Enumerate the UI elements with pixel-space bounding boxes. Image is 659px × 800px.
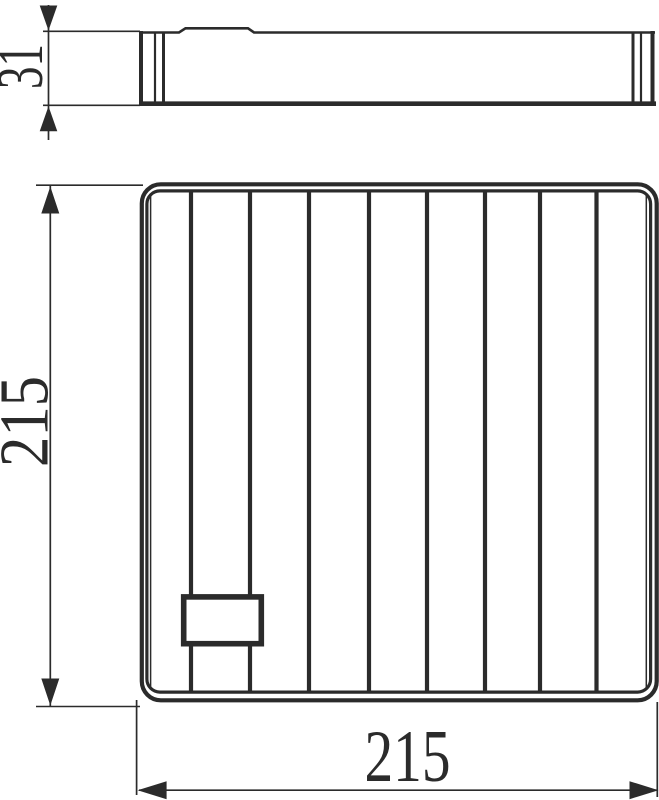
svg-text:215: 215 [365,716,451,798]
svg-text:215: 215 [0,376,64,467]
svg-text:31: 31 [0,44,57,89]
